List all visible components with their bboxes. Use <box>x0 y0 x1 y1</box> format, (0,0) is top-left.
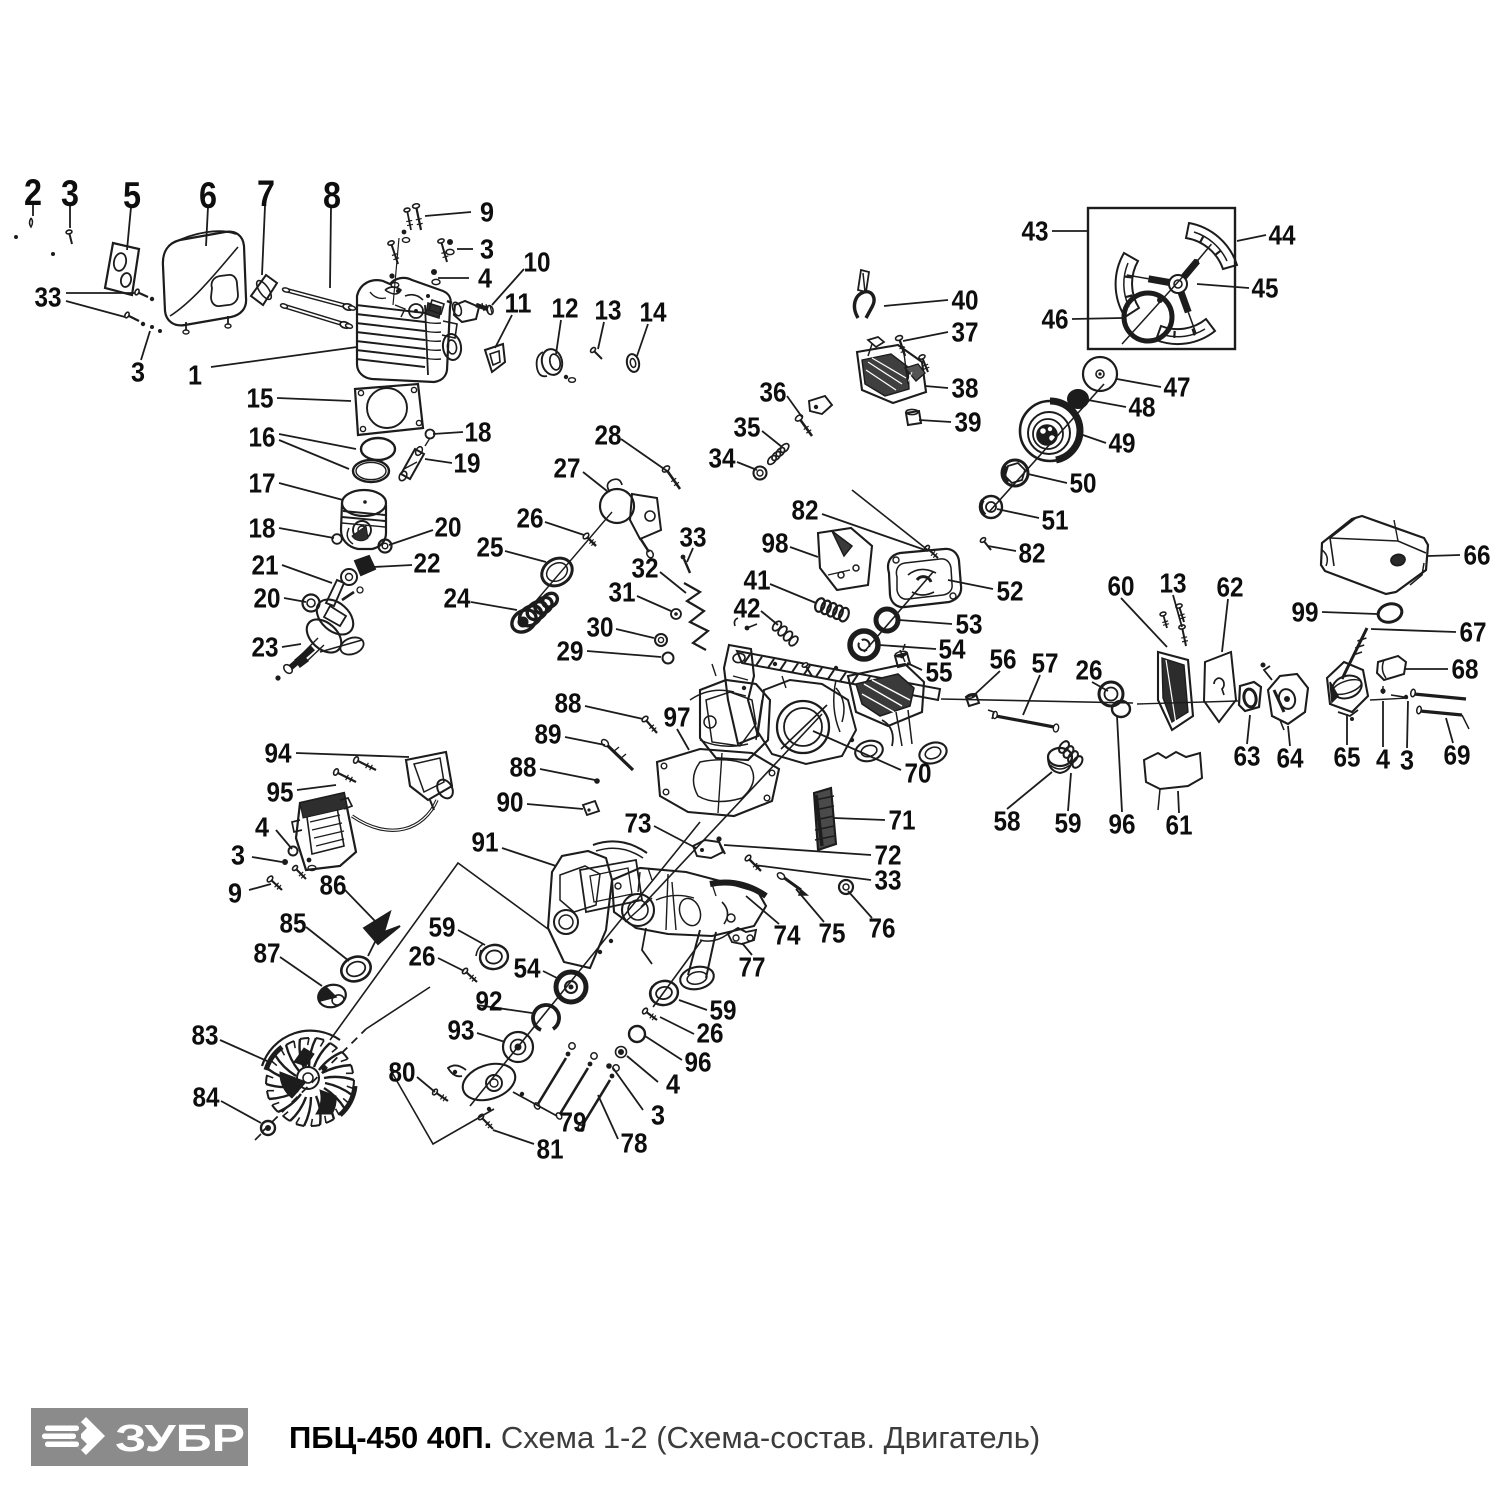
svg-text:66: 66 <box>1464 540 1491 571</box>
svg-text:83: 83 <box>192 1020 219 1051</box>
svg-text:74: 74 <box>774 920 801 951</box>
svg-text:33: 33 <box>680 522 707 553</box>
svg-text:3: 3 <box>651 1100 665 1131</box>
svg-text:26: 26 <box>697 1018 724 1049</box>
svg-text:3: 3 <box>231 840 245 871</box>
svg-text:87: 87 <box>254 938 281 969</box>
svg-text:81: 81 <box>537 1134 564 1165</box>
svg-text:70: 70 <box>905 758 932 789</box>
svg-text:43: 43 <box>1022 216 1049 247</box>
svg-text:68: 68 <box>1452 654 1479 685</box>
svg-text:95: 95 <box>267 777 294 808</box>
svg-text:15: 15 <box>247 383 274 414</box>
svg-text:26: 26 <box>409 941 436 972</box>
svg-text:35: 35 <box>734 412 761 443</box>
svg-text:21: 21 <box>252 550 279 581</box>
svg-text:47: 47 <box>1164 372 1191 403</box>
svg-text:44: 44 <box>1269 220 1296 251</box>
svg-text:2: 2 <box>24 172 42 213</box>
svg-text:9: 9 <box>480 197 494 228</box>
svg-text:92: 92 <box>476 986 503 1017</box>
svg-text:33: 33 <box>875 865 902 896</box>
svg-text:37: 37 <box>952 317 979 348</box>
svg-text:48: 48 <box>1129 392 1156 423</box>
svg-text:26: 26 <box>517 503 544 534</box>
svg-text:25: 25 <box>477 532 504 563</box>
svg-text:18: 18 <box>465 417 492 448</box>
svg-text:42: 42 <box>734 593 761 624</box>
svg-text:78: 78 <box>621 1128 648 1159</box>
svg-text:54: 54 <box>514 953 541 984</box>
svg-text:75: 75 <box>819 918 846 949</box>
svg-text:58: 58 <box>994 806 1021 837</box>
svg-text:73: 73 <box>625 808 652 839</box>
svg-text:16: 16 <box>249 422 276 453</box>
svg-text:82: 82 <box>792 495 819 526</box>
svg-text:62: 62 <box>1217 572 1244 603</box>
svg-text:50: 50 <box>1070 468 1097 499</box>
svg-text:93: 93 <box>448 1015 475 1046</box>
svg-text:94: 94 <box>265 738 292 769</box>
svg-text:96: 96 <box>1109 809 1136 840</box>
svg-text:69: 69 <box>1444 740 1471 771</box>
svg-text:7: 7 <box>257 173 275 214</box>
svg-text:13: 13 <box>595 295 622 326</box>
svg-text:24: 24 <box>444 583 471 614</box>
svg-text:39: 39 <box>955 407 982 438</box>
svg-text:67: 67 <box>1460 617 1487 648</box>
svg-text:18: 18 <box>249 513 276 544</box>
svg-text:64: 64 <box>1277 743 1304 774</box>
svg-text:3: 3 <box>480 234 494 265</box>
svg-text:79: 79 <box>560 1107 587 1138</box>
svg-text:27: 27 <box>554 453 581 484</box>
svg-text:40: 40 <box>952 285 979 316</box>
svg-text:4: 4 <box>255 812 269 843</box>
svg-text:55: 55 <box>926 657 953 688</box>
svg-text:71: 71 <box>889 805 916 836</box>
svg-text:5: 5 <box>123 175 141 216</box>
svg-text:49: 49 <box>1109 428 1136 459</box>
svg-text:9: 9 <box>228 878 242 909</box>
svg-text:4: 4 <box>1376 744 1390 775</box>
svg-text:38: 38 <box>952 373 979 404</box>
svg-text:85: 85 <box>280 908 307 939</box>
svg-text:89: 89 <box>535 719 562 750</box>
svg-text:52: 52 <box>997 576 1024 607</box>
svg-text:90: 90 <box>497 787 524 818</box>
svg-text:99: 99 <box>1292 597 1319 628</box>
svg-text:6: 6 <box>199 175 217 216</box>
svg-text:3: 3 <box>131 357 145 388</box>
svg-text:60: 60 <box>1108 571 1135 602</box>
svg-text:46: 46 <box>1042 304 1069 335</box>
svg-text:88: 88 <box>510 752 537 783</box>
svg-text:20: 20 <box>435 512 462 543</box>
svg-text:4: 4 <box>478 263 492 294</box>
svg-text:22: 22 <box>414 548 441 579</box>
svg-text:76: 76 <box>869 913 896 944</box>
svg-text:28: 28 <box>595 420 622 451</box>
svg-text:59: 59 <box>429 912 456 943</box>
svg-text:13: 13 <box>1160 568 1187 599</box>
svg-text:29: 29 <box>557 636 584 667</box>
svg-text:1: 1 <box>188 360 202 391</box>
svg-text:84: 84 <box>193 1082 220 1113</box>
svg-text:57: 57 <box>1032 648 1059 679</box>
svg-text:32: 32 <box>632 553 659 584</box>
svg-text:59: 59 <box>1055 808 1082 839</box>
svg-text:30: 30 <box>587 612 614 643</box>
svg-text:65: 65 <box>1334 742 1361 773</box>
svg-text:98: 98 <box>762 528 789 559</box>
svg-text:77: 77 <box>739 952 766 983</box>
svg-text:97: 97 <box>664 702 691 733</box>
svg-text:4: 4 <box>666 1069 680 1100</box>
svg-text:51: 51 <box>1042 505 1069 536</box>
svg-text:8: 8 <box>323 175 341 216</box>
svg-text:91: 91 <box>472 827 499 858</box>
svg-text:86: 86 <box>320 870 347 901</box>
svg-text:36: 36 <box>760 377 787 408</box>
svg-text:20: 20 <box>254 583 281 614</box>
svg-text:19: 19 <box>454 448 481 479</box>
svg-text:3: 3 <box>1400 745 1414 776</box>
svg-text:23: 23 <box>252 632 279 663</box>
svg-text:11: 11 <box>505 288 532 319</box>
svg-text:14: 14 <box>640 297 667 328</box>
svg-text:80: 80 <box>389 1057 416 1088</box>
svg-text:56: 56 <box>990 644 1017 675</box>
svg-text:17: 17 <box>249 468 276 499</box>
svg-text:ЗУБР: ЗУБР <box>115 1418 245 1460</box>
svg-text:61: 61 <box>1166 810 1193 841</box>
svg-text:26: 26 <box>1076 655 1103 686</box>
svg-text:63: 63 <box>1234 741 1261 772</box>
svg-text:41: 41 <box>744 565 771 596</box>
svg-text:88: 88 <box>555 688 582 719</box>
svg-text:96: 96 <box>685 1047 712 1078</box>
svg-text:33: 33 <box>35 282 62 313</box>
svg-text:45: 45 <box>1252 273 1279 304</box>
svg-text:10: 10 <box>524 247 551 278</box>
svg-text:34: 34 <box>709 443 736 474</box>
svg-text:82: 82 <box>1019 538 1046 569</box>
svg-text:3: 3 <box>61 173 79 214</box>
svg-text:12: 12 <box>552 293 579 324</box>
